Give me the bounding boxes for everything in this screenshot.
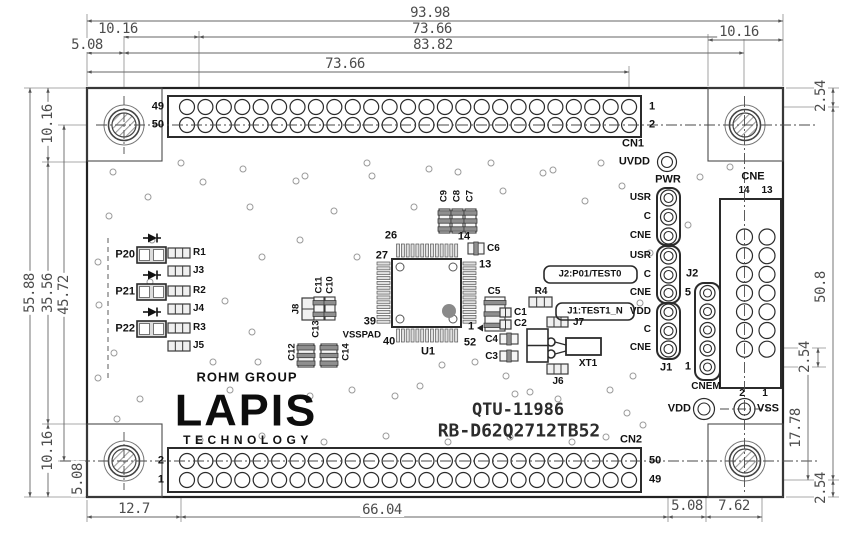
dim-height-total: 55.88 [23, 271, 37, 315]
rohm-group-logo: ROHM GROUP [197, 370, 298, 385]
callout-j1: J1:TEST1_N [567, 306, 622, 316]
dim-cn1-span: 73.66 [323, 57, 367, 71]
jh-row-5: C [644, 270, 651, 280]
p22-label: P22 [115, 324, 135, 335]
c4-label: C4 [485, 335, 498, 345]
dim-row-span: 45.72 [57, 273, 71, 317]
dim-vss-offset: 7.62 [716, 499, 752, 513]
dim-right-bottom: 2.54 [814, 470, 828, 506]
pin1-marker-dot [442, 304, 456, 318]
c1-label: C1 [514, 308, 527, 318]
r1-label: R1 [193, 248, 206, 258]
dim-left-bottom: 10.16 [41, 429, 55, 473]
cnem-pin-5: 5 [685, 288, 691, 299]
c13-label: C13 [311, 320, 321, 337]
callout-j2: J2:P01/TEST0 [559, 269, 622, 279]
vsspad-label: VSSPAD [343, 330, 381, 340]
dim-right-top: 2.54 [814, 78, 828, 114]
cn1-pin-2: 2 [649, 120, 655, 131]
j8-label: J8 [291, 304, 301, 315]
c3-label: C3 [485, 352, 498, 362]
uvdd-label: UVDD [619, 157, 650, 168]
cne-pin-14: 14 [738, 186, 749, 196]
cne-pin-13: 13 [761, 186, 772, 196]
c10-label: C10 [325, 276, 335, 293]
u1-pin-27: 27 [376, 251, 388, 262]
cnem-pin-1: 1 [685, 362, 691, 373]
u1-label: U1 [421, 347, 435, 358]
p20-label: P20 [115, 250, 135, 261]
dim-bottom-edge: 5.08 [71, 461, 85, 497]
component-box [527, 329, 548, 362]
u1-pin-14: 14 [458, 232, 470, 243]
u1-pin-39: 39 [364, 317, 376, 328]
cne-pin-1: 1 [762, 389, 768, 399]
cne-pin-2: 2 [739, 389, 745, 399]
dim-cne-offset: 17.78 [789, 406, 803, 450]
cn2-label: CN2 [620, 435, 642, 446]
jh-row-9: CNE [630, 343, 651, 353]
j6-label: J6 [552, 377, 563, 387]
c5-label: C5 [488, 287, 501, 297]
j5-label: J5 [193, 341, 204, 351]
jh-row-6: CNE [630, 288, 651, 298]
pcb-dimension-drawing: 495012CN1UVDDPWRUSRCCNEUSRCCNEVDDCCNEJ2J… [0, 0, 850, 534]
jh-row-4: USR [630, 251, 651, 261]
dim-left-mid: 35.56 [41, 271, 55, 315]
j7-label: J7 [573, 318, 584, 328]
c12-label: C12 [287, 343, 297, 360]
cne-label: CNE [741, 172, 764, 183]
u1-pin-13: 13 [479, 260, 491, 271]
cn2-pin-50: 50 [649, 456, 661, 467]
dim-top-right-offset: 10.16 [717, 25, 761, 39]
lapis-logo: LAPIS [175, 386, 318, 437]
r2-label: R2 [193, 286, 206, 296]
jh-row-8: C [644, 325, 651, 335]
xt1-label: XT1 [579, 359, 597, 369]
board-drawing-canvas [0, 0, 850, 534]
c11-label: C11 [314, 277, 324, 294]
u1-pin-26: 26 [385, 231, 397, 242]
c9-label: C9 [439, 190, 449, 202]
j3-label: J3 [193, 266, 204, 276]
dim-hole-span: 83.82 [411, 38, 455, 52]
u1-pin-1: 1 [468, 322, 474, 333]
c8-label: C8 [452, 190, 462, 202]
dim-top-edge: 5.08 [69, 38, 105, 52]
c6-label: C6 [487, 244, 500, 254]
cn1-label: CN1 [622, 139, 644, 150]
dim-top-left-offset: 10.16 [96, 22, 140, 36]
r4-label: R4 [535, 287, 548, 297]
j4-label: J4 [193, 304, 204, 314]
dim-cn2-left: 12.7 [116, 502, 152, 516]
cn2-pin-1: 1 [158, 475, 164, 486]
dim-right-span: 50.8 [814, 269, 828, 305]
dim-cn2-span: 66.04 [360, 503, 404, 517]
c7-label: C7 [465, 190, 475, 202]
drawing-number: QTU-11986 [472, 400, 564, 420]
technology-logo: TECHNOLOGY [183, 433, 313, 447]
dim-cne-pitch: 2.54 [798, 339, 812, 375]
j2-label: J2 [686, 269, 698, 280]
jh-row-2: C [644, 212, 651, 222]
dim-j1-offset: 5.08 [669, 499, 705, 513]
jh-row-1: USR [630, 193, 651, 203]
cn1-pin-1: 1 [649, 102, 655, 113]
pwr-label: PWR [655, 175, 681, 186]
p21-label: P21 [115, 287, 135, 298]
u1-pin-52: 52 [464, 338, 476, 349]
dim-width-total: 93.98 [408, 6, 452, 20]
vdd-label: VDD [668, 404, 691, 415]
dim-top-span: 73.66 [410, 22, 454, 36]
vss-label: VSS [757, 404, 779, 415]
r3-label: R3 [193, 323, 206, 333]
j1-label: J1 [660, 363, 672, 374]
cn1-pin-49: 49 [152, 102, 164, 113]
c14-label: C14 [341, 343, 351, 360]
cn2-pin-49: 49 [649, 475, 661, 486]
u1-pin-40: 40 [383, 337, 395, 348]
cn1-pin-50: 50 [152, 120, 164, 131]
cnem-label: CNEM [691, 382, 720, 392]
jh-row-7: VDD [630, 307, 651, 317]
cn2-pin-2: 2 [158, 456, 164, 467]
board-name: RB-D62Q2712TB52 [438, 421, 601, 442]
dim-left-top: 10.16 [41, 102, 55, 146]
jh-row-3: CNE [630, 231, 651, 241]
c2-label: C2 [514, 319, 527, 329]
